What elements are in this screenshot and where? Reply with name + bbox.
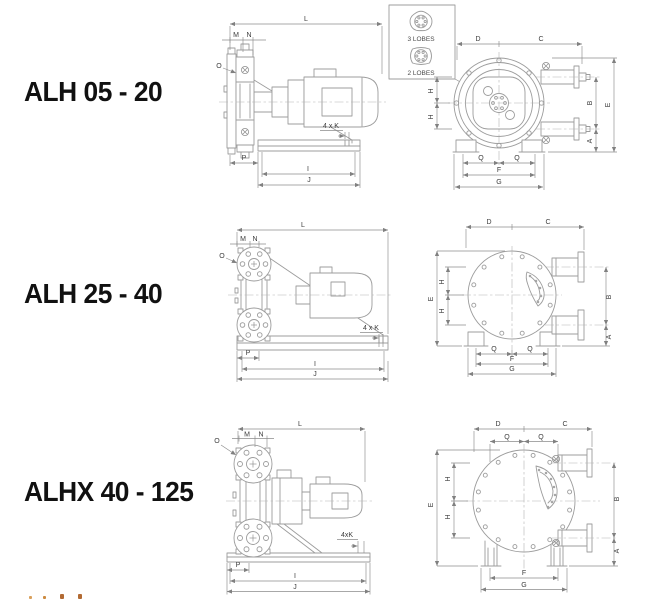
dim-label-q: Q <box>504 434 510 441</box>
dim-label-q: Q <box>478 155 484 162</box>
dim-label-n: N <box>252 236 257 243</box>
dim-label-l: L <box>301 222 305 229</box>
dim-label-q: Q <box>491 346 497 353</box>
three-lobes-label: 3 LOBES <box>407 36 435 43</box>
alhx-40-125-front-view: D C Q Q E H H B A F <box>428 421 621 593</box>
drawing-sheet: ALH 05 - 20 ALH 25 - 40 ALHX 40 - 125 <box>0 0 672 599</box>
dim-label-j: J <box>307 177 311 184</box>
dim-label-g: G <box>521 582 526 589</box>
dim-label-h: H <box>439 308 446 313</box>
dim-label-q: Q <box>538 434 544 441</box>
dim-label-h: H <box>445 476 452 481</box>
dim-label-e: E <box>428 502 435 507</box>
dim-label-g: G <box>496 179 501 186</box>
dim-label-a: A <box>587 138 594 143</box>
dim-label-g: G <box>509 366 514 373</box>
dim-label-i: I <box>294 573 296 580</box>
dim-label-p: P <box>242 155 247 162</box>
dim-label-a: A <box>606 334 613 339</box>
dim-label-j: J <box>293 584 297 591</box>
dim-label-i: I <box>307 166 309 173</box>
dim-label-b: B <box>587 100 594 105</box>
dim-label-o: O <box>214 438 220 445</box>
dim-label-o: O <box>219 253 225 260</box>
dim-label-4xk: 4 x K <box>363 325 379 332</box>
dim-label-m: M <box>233 32 239 39</box>
alh-25-40-side-view: L M N O 4 x K P I J <box>219 222 392 382</box>
dim-label-j: J <box>313 371 317 378</box>
alh-05-20-front-view: D C E B A H H Q Q F <box>428 36 617 190</box>
dim-label-i: I <box>314 361 316 368</box>
dim-label-h: H <box>428 114 435 119</box>
dim-label-m: M <box>244 432 250 439</box>
dim-label-q: Q <box>514 155 520 162</box>
footer-logo-artifact <box>78 594 82 599</box>
dim-label-4xk: 4xK <box>341 532 353 539</box>
dim-label-q: Q <box>527 346 533 353</box>
dim-label-p: P <box>246 350 251 357</box>
dim-label-d: D <box>495 421 500 428</box>
two-lobes-label: 2 LOBES <box>407 70 435 77</box>
alhx-40-125-side-view: L M N O 4xK P I J <box>214 421 372 595</box>
dim-label-m: M <box>240 236 246 243</box>
dim-label-h: H <box>445 514 452 519</box>
dim-label-e: E <box>605 102 612 107</box>
dim-label-d: D <box>486 219 491 226</box>
dim-label-4xk: 4 x K <box>323 123 339 130</box>
dim-label-h: H <box>428 88 435 93</box>
dim-label-b: B <box>606 294 613 299</box>
alh-25-40-front-view: D C E H H B A Q Q F <box>428 219 613 377</box>
dim-label-l: L <box>298 421 302 428</box>
dim-label-l: L <box>304 16 308 23</box>
dim-label-f: F <box>510 356 514 363</box>
dim-label-c: C <box>538 36 543 43</box>
dim-label-f: F <box>497 167 501 174</box>
alh-05-20-side-view: L M N O 4 x K P I <box>216 16 386 188</box>
dim-label-e: E <box>428 296 435 301</box>
dim-label-c: C <box>545 219 550 226</box>
dim-label-c: C <box>562 421 567 428</box>
dim-label-n: N <box>258 432 263 439</box>
footer-logo-artifact <box>60 594 64 599</box>
dim-label-o: O <box>216 63 222 70</box>
dim-label-a: A <box>614 548 621 553</box>
technical-drawing-canvas: L M N O 4 x K P I <box>0 0 672 599</box>
dim-label-d: D <box>475 36 480 43</box>
dim-label-b: B <box>614 496 621 501</box>
dim-label-f: F <box>522 570 526 577</box>
dim-label-h: H <box>439 279 446 284</box>
dim-label-p: P <box>236 562 241 569</box>
dim-label-n: N <box>246 32 251 39</box>
